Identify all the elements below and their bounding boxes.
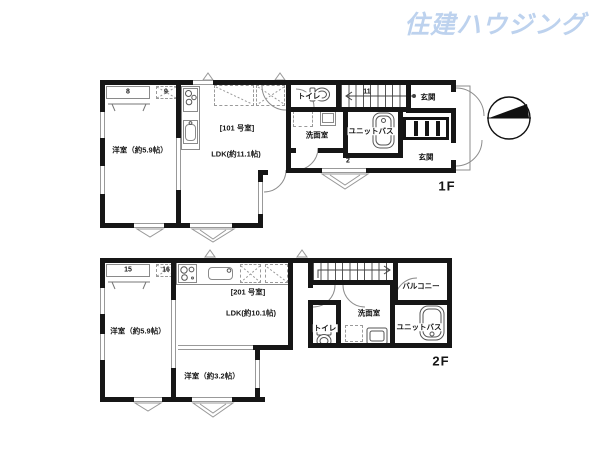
window-or-slider — [193, 80, 213, 85]
north-compass-icon — [487, 97, 531, 139]
marker-8: 8 — [126, 89, 130, 96]
window-or-slider — [176, 138, 181, 190]
wall-segment — [451, 80, 456, 92]
room-label-west-room32-2f: 洋室（約3.2帖） — [184, 372, 239, 380]
wall-segment — [100, 258, 452, 263]
fixture-box — [425, 121, 429, 136]
wall-segment — [258, 170, 268, 175]
window-or-slider — [255, 360, 260, 388]
wall-segment — [286, 80, 291, 173]
window-or-slider — [100, 112, 105, 138]
wall-segment — [100, 80, 456, 85]
window-or-slider — [134, 223, 164, 228]
wall-segment — [343, 112, 348, 158]
window-or-slider — [190, 223, 232, 228]
room-label-ldk-1f: LDK(約11.1帖) — [211, 150, 261, 158]
room-label-west-room59-2f: 洋室（約5.9帖） — [110, 327, 165, 335]
wall-segment — [100, 397, 265, 402]
window-or-slider — [100, 166, 105, 194]
wall-segment — [308, 280, 395, 285]
fixture-box — [185, 124, 196, 141]
unit-number-101: [101 号室] — [220, 124, 255, 132]
wall-segment — [291, 148, 296, 153]
wall-segment — [451, 108, 456, 143]
window-or-slider — [134, 397, 162, 402]
fixture-box — [183, 88, 198, 112]
wall-segment — [291, 107, 411, 112]
wall-segment — [308, 343, 452, 348]
floor-label-1f: 1F — [438, 180, 455, 193]
wall-segment — [390, 285, 395, 348]
plan-linework — [0, 0, 600, 450]
wall-segment — [318, 148, 343, 153]
wall-segment — [343, 153, 403, 158]
wall-segment — [291, 168, 456, 173]
fixture-box — [436, 121, 440, 136]
marker-9: 9 — [164, 89, 168, 96]
window-or-slider — [171, 300, 176, 368]
window-or-slider — [100, 334, 105, 360]
window-or-slider — [192, 397, 232, 402]
room-label-entrance-top-1f: 玄関 — [421, 93, 436, 101]
marker-11: 11 — [363, 89, 370, 96]
room-label-unit-bath-2f: ユニットバス — [396, 323, 443, 331]
wall-segment — [100, 80, 105, 228]
marker-16: 16 — [162, 267, 170, 274]
room-label-balcony-2f: バルコニー — [402, 282, 439, 290]
company-logo: 住建ハウジング — [404, 5, 586, 41]
floor-label-2f: 2F — [432, 355, 449, 368]
wall-segment — [288, 258, 293, 350]
room-label-entrance-bottom-1f: 玄関 — [419, 153, 434, 161]
window-or-slider — [258, 182, 263, 214]
window-or-slider — [100, 288, 105, 314]
fixture-box — [345, 325, 363, 342]
fixture-box — [214, 85, 254, 106]
marker-2: 2 — [346, 158, 350, 165]
room-label-washroom-1f: 洗面室 — [306, 131, 329, 139]
room-label-toilet-1f: トイレ — [297, 92, 322, 100]
wall-segment — [308, 300, 341, 305]
fixture-box — [322, 113, 334, 123]
washstand-2f — [367, 328, 387, 344]
room-label-washroom-2f: 洗面室 — [358, 309, 381, 317]
wall-segment — [100, 223, 263, 228]
room-label-west-room-1f: 洋室（約5.9帖） — [112, 146, 167, 154]
fixture-box — [256, 85, 285, 106]
fixture-box — [414, 121, 418, 136]
stairs-1f — [341, 85, 406, 107]
floorplan-canvas: 住建ハウジング — [0, 0, 600, 450]
marker-15: 15 — [124, 267, 132, 274]
fixture-box — [208, 267, 233, 280]
stairs-2f — [313, 263, 393, 280]
wall-segment — [451, 160, 456, 173]
fixture-box — [265, 264, 288, 283]
wall-segment — [100, 258, 105, 402]
wall-segment — [398, 112, 403, 158]
window-or-slider — [178, 345, 253, 350]
room-label-toilet-2f: トイレ — [313, 324, 338, 332]
fixture-box — [293, 111, 313, 127]
wall-segment — [406, 108, 451, 113]
wall-segment — [393, 300, 452, 305]
fixture-box — [240, 264, 261, 283]
window-or-slider — [322, 168, 366, 173]
unit-number-201: [201 号室] — [231, 288, 266, 296]
room-label-ldk-2f: LDK(約10.1帖) — [226, 309, 276, 317]
room-label-unit-bath-1f: ユニットバス — [348, 127, 395, 135]
fixture-box — [178, 264, 197, 283]
